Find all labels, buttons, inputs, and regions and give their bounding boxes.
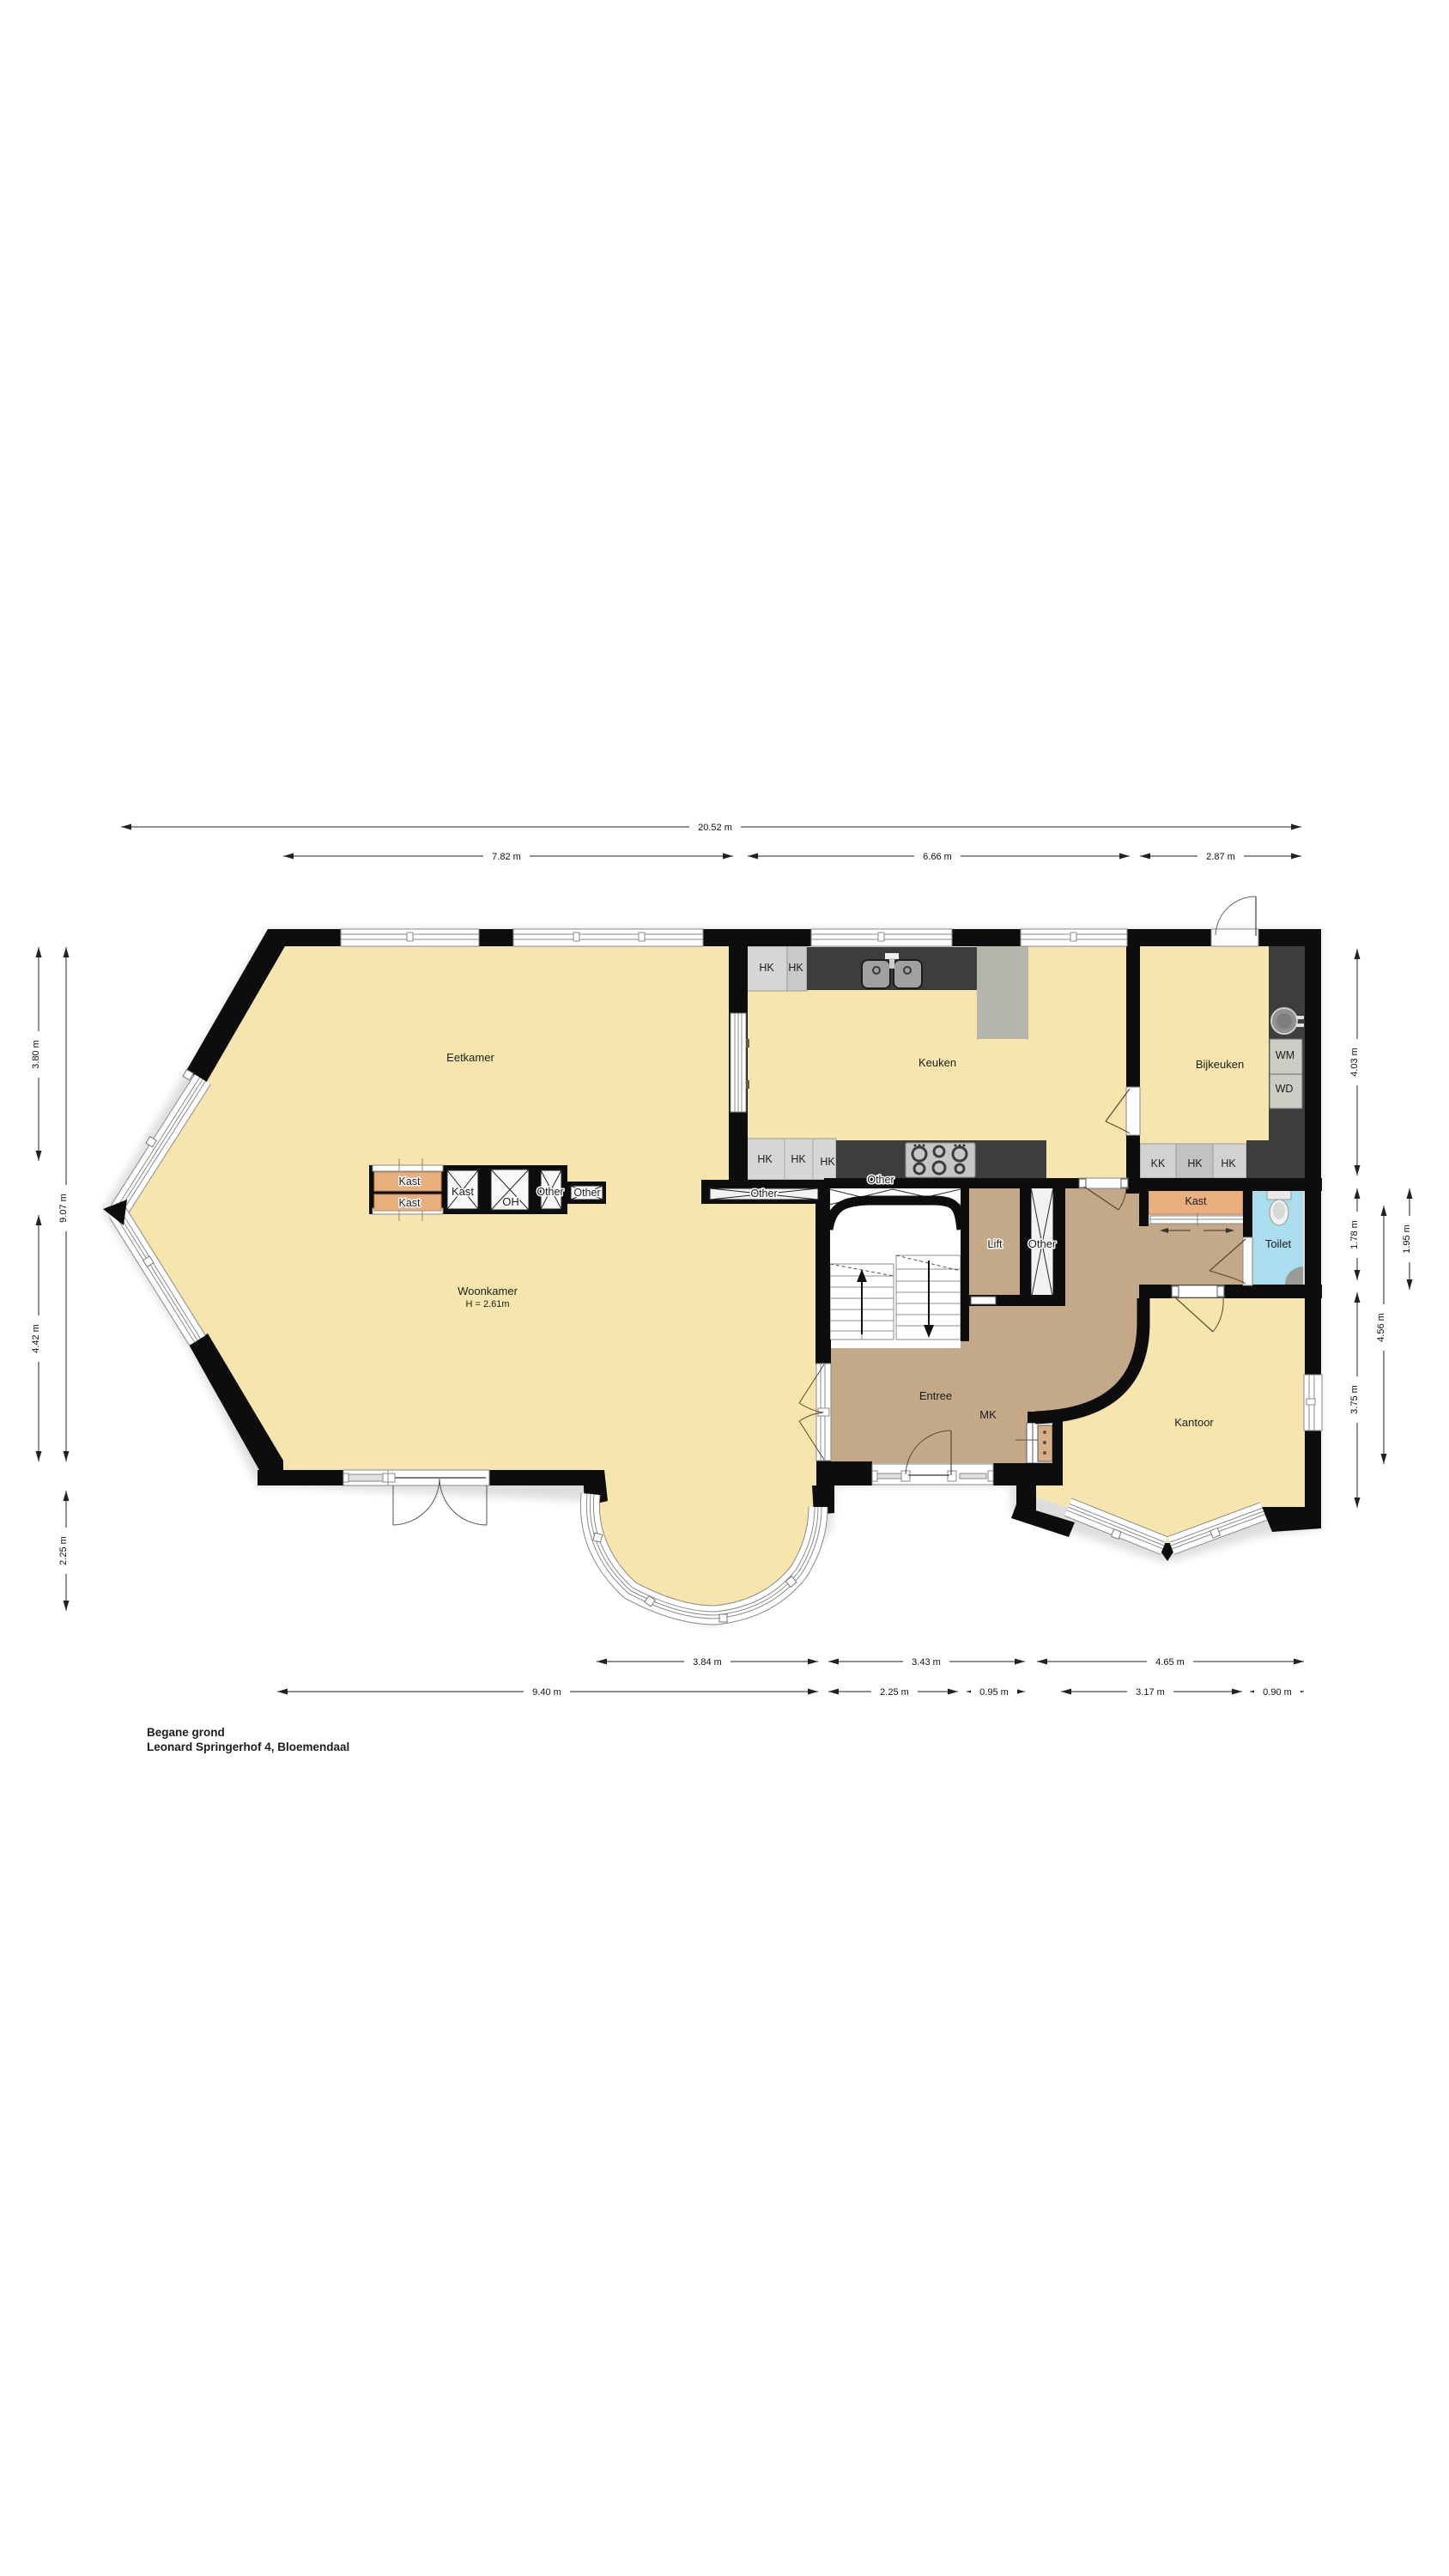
svg-text:9.40 m: 9.40 m [532,1687,561,1698]
svg-text:Kantoor: Kantoor [1174,1416,1214,1429]
svg-text:Kast: Kast [398,1176,421,1188]
svg-text:HK: HK [788,962,803,974]
svg-text:H = 2.61m: H = 2.61m [465,1299,509,1309]
svg-text:3.43 m: 3.43 m [912,1657,941,1668]
svg-text:WD: WD [1276,1083,1294,1095]
svg-text:4.42 m: 4.42 m [31,1324,41,1353]
svg-text:Woonkamer: Woonkamer [458,1285,518,1297]
svg-text:Other: Other [537,1186,563,1198]
svg-text:20.52 m: 20.52 m [698,823,732,833]
svg-text:Other: Other [750,1188,777,1200]
svg-text:2.87 m: 2.87 m [1206,852,1235,862]
svg-text:HK: HK [759,962,774,974]
svg-text:HK: HK [820,1156,835,1168]
svg-text:0.90 m: 0.90 m [1263,1687,1292,1698]
svg-text:WM: WM [1276,1049,1294,1061]
svg-text:Entree: Entree [919,1389,952,1402]
svg-text:7.82 m: 7.82 m [492,852,521,862]
svg-text:Begane grond: Begane grond [147,1726,225,1739]
svg-text:3.80 m: 3.80 m [31,1040,41,1069]
svg-text:Keuken: Keuken [919,1056,956,1069]
svg-text:6.66 m: 6.66 m [923,852,952,862]
svg-text:MK: MK [979,1408,997,1421]
svg-text:Bijkeuken: Bijkeuken [1196,1058,1244,1071]
svg-text:3.84 m: 3.84 m [693,1657,722,1668]
svg-text:4.65 m: 4.65 m [1155,1657,1185,1668]
svg-text:Leonard Springerhof 4, Bloemen: Leonard Springerhof 4, Bloemendaal [147,1741,349,1753]
svg-text:1.78 m: 1.78 m [1349,1220,1360,1249]
svg-text:Kast: Kast [452,1185,474,1198]
svg-text:2.25 m: 2.25 m [880,1687,909,1698]
svg-text:2.25 m: 2.25 m [58,1536,69,1565]
svg-text:3.75 m: 3.75 m [1349,1385,1360,1414]
svg-text:9.07 m: 9.07 m [58,1194,69,1223]
svg-text:Other: Other [1028,1237,1057,1250]
svg-text:Lift: Lift [987,1237,1003,1250]
svg-text:1.95 m: 1.95 m [1402,1224,1412,1254]
svg-text:HK: HK [757,1153,773,1165]
svg-text:OH: OH [502,1195,519,1208]
svg-text:Toilet: Toilet [1265,1237,1292,1250]
svg-text:Kast: Kast [1185,1195,1207,1207]
svg-text:4.56 m: 4.56 m [1376,1313,1386,1342]
svg-text:Kast: Kast [398,1197,421,1209]
svg-text:Other: Other [573,1187,600,1199]
svg-text:Eetkamer: Eetkamer [446,1051,494,1064]
svg-text:4.03 m: 4.03 m [1349,1048,1360,1077]
svg-text:3.17 m: 3.17 m [1136,1687,1165,1698]
svg-text:HK: HK [1221,1157,1236,1170]
svg-text:HK: HK [791,1153,806,1165]
svg-text:HK: HK [1187,1157,1203,1170]
svg-text:KK: KK [1151,1157,1166,1170]
svg-text:0.95 m: 0.95 m [979,1687,1009,1698]
svg-text:Other: Other [867,1174,894,1186]
